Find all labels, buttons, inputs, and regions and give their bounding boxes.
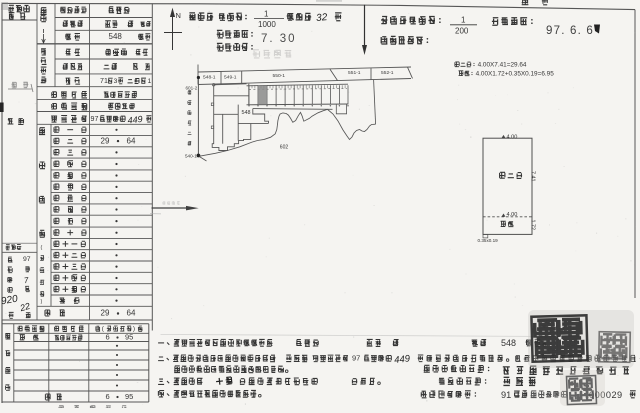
svg-text:4.00X7.41=29.64: 4.00X7.41=29.64 [478, 61, 527, 68]
svg-text:29: 29 [101, 136, 110, 145]
svg-text:449: 449 [394, 353, 412, 366]
svg-text:540-1: 540-1 [185, 154, 197, 159]
svg-text:0.35x0.19: 0.35x0.19 [478, 238, 499, 243]
svg-text:1: 1 [264, 10, 269, 19]
svg-text:71: 71 [100, 77, 108, 85]
svg-text:449: 449 [127, 114, 143, 126]
svg-text:200: 200 [455, 27, 469, 36]
svg-text:548-1: 548-1 [203, 75, 216, 81]
svg-text:95: 95 [125, 392, 133, 401]
svg-text:551-1: 551-1 [348, 70, 361, 76]
svg-text:97: 97 [91, 115, 99, 123]
svg-text:549-1: 549-1 [224, 75, 237, 81]
svg-text:601-2: 601-2 [186, 85, 198, 90]
svg-text:91: 91 [501, 390, 511, 400]
svg-text:548: 548 [242, 110, 251, 116]
svg-text:548: 548 [501, 338, 516, 348]
svg-text:64: 64 [127, 309, 136, 318]
svg-text:(: ( [41, 245, 43, 251]
svg-text:4.00X1.72+0.35X0.19=6.95: 4.00X1.72+0.35X0.19=6.95 [476, 70, 555, 77]
svg-text:1000: 1000 [258, 20, 276, 29]
svg-text:1: 1 [461, 16, 466, 25]
svg-text:97: 97 [23, 256, 31, 263]
svg-text:97: 97 [352, 354, 360, 363]
svg-text:64: 64 [127, 136, 136, 145]
svg-text:32: 32 [316, 12, 328, 24]
svg-text:95: 95 [125, 333, 133, 342]
svg-text:550-1: 550-1 [273, 73, 286, 79]
svg-text:1: 1 [148, 78, 152, 85]
svg-text:3: 3 [114, 78, 118, 85]
svg-text:N: N [176, 11, 181, 20]
svg-text:552-1: 552-1 [381, 70, 394, 76]
svg-text:4.00: 4.00 [507, 212, 518, 218]
svg-text:602: 602 [280, 145, 289, 151]
svg-text:7.41: 7.41 [530, 171, 536, 182]
svg-text:1.72: 1.72 [530, 220, 536, 231]
svg-text:29: 29 [101, 309, 110, 318]
svg-text:7. 30: 7. 30 [261, 33, 297, 45]
svg-text:): ) [133, 326, 135, 333]
svg-text:4.00: 4.00 [507, 134, 518, 140]
svg-text:): ) [41, 299, 43, 305]
svg-text:6: 6 [106, 392, 110, 401]
svg-text:6: 6 [106, 333, 110, 342]
svg-text:548: 548 [109, 32, 123, 41]
svg-text:97. 6. 6: 97. 6. 6 [546, 25, 594, 37]
